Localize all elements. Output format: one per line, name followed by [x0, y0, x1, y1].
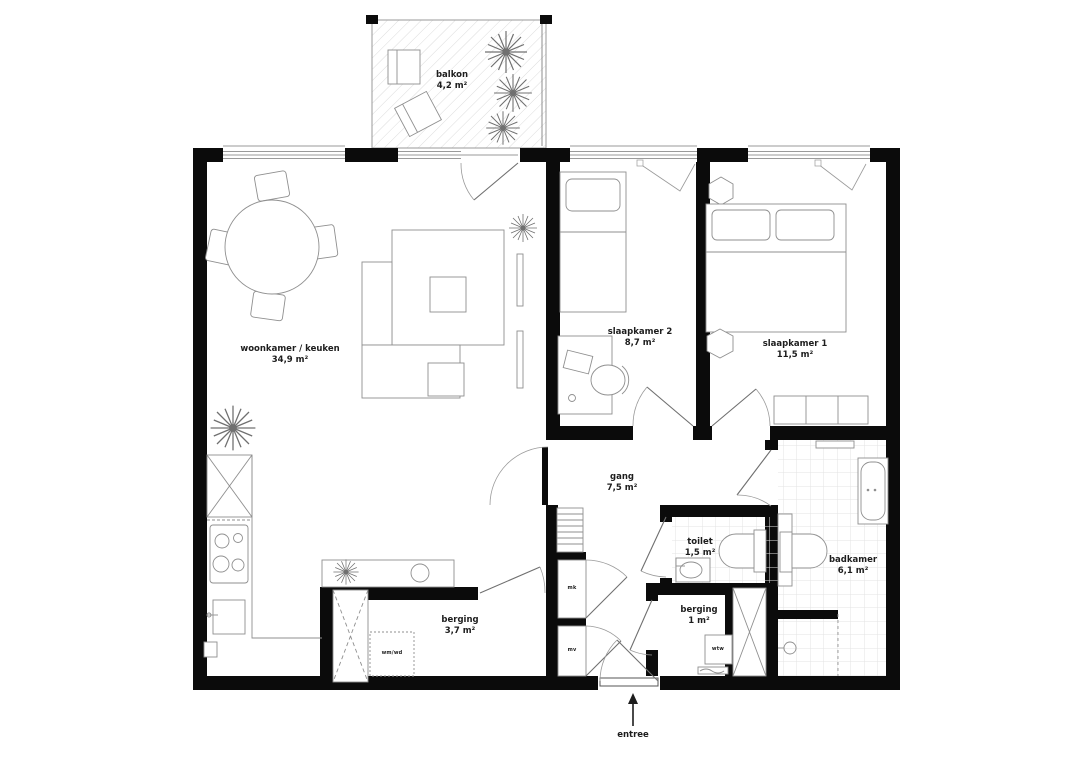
- wall-radiator: [517, 254, 523, 388]
- room-label-woonkamer: woonkamer / keuken 34,9 m²: [240, 344, 339, 366]
- plant-icon: [211, 406, 256, 451]
- door-bedroom1: [712, 389, 770, 426]
- entree-label: entree: [617, 730, 649, 741]
- room-label-balkon: balkon 4,2 m²: [436, 70, 468, 92]
- window-tilt: [748, 146, 870, 190]
- ventilation-label: mv: [568, 647, 577, 654]
- floor-plan: balkon 4,2 m² woonkamer / keuken 34,9 m²…: [0, 0, 1092, 772]
- floor-plan-drawing: [0, 0, 1092, 772]
- kitchen-island: [322, 559, 454, 587]
- bedroom2-furniture: [558, 172, 629, 414]
- sink-icon: [207, 600, 245, 634]
- balcony-chair: [388, 50, 420, 84]
- door-storage-small: [630, 600, 652, 655]
- balcony-door: [461, 155, 518, 200]
- room-label-slaapkamer2: slaapkamer 2 8,7 m²: [608, 327, 673, 349]
- window: [398, 152, 461, 159]
- door-livingroom: [490, 447, 548, 505]
- storage-small: [698, 635, 732, 674]
- dining-set: [205, 170, 338, 321]
- small-sink-icon: [676, 558, 710, 582]
- bedroom1-furniture: [706, 177, 868, 424]
- entrance-arrow-icon: [628, 693, 638, 726]
- door-bathroom: [737, 450, 771, 506]
- washbasin-icon: [858, 458, 888, 524]
- window: [223, 146, 345, 159]
- storage-large: [333, 590, 414, 682]
- cooktop-icon: [210, 525, 248, 583]
- room-label-berging: berging 3,7 m²: [441, 615, 478, 637]
- room-label-badkamer: badkamer 6,1 m²: [829, 555, 877, 577]
- room-label-toilet: toilet 1,5 m²: [685, 537, 716, 559]
- room-label-slaapkamer1: slaapkamer 1 11,5 m²: [763, 339, 828, 361]
- room-label-gang: gang 7,5 m²: [607, 472, 638, 494]
- washer-dryer-label: wm/wd: [382, 650, 403, 657]
- room-label-berging-klein: berging 1 m²: [680, 605, 717, 627]
- door-storage-large: [480, 567, 545, 593]
- wtw-label: wtw: [712, 646, 724, 653]
- plant-icon: [509, 214, 537, 242]
- door-bedroom2: [633, 387, 693, 426]
- sofa: [362, 230, 504, 398]
- meter-cupboard-label: mk: [568, 585, 577, 592]
- coat-rack-icon: [557, 508, 583, 552]
- closet-x: [733, 588, 766, 676]
- door-toilet: [641, 517, 666, 577]
